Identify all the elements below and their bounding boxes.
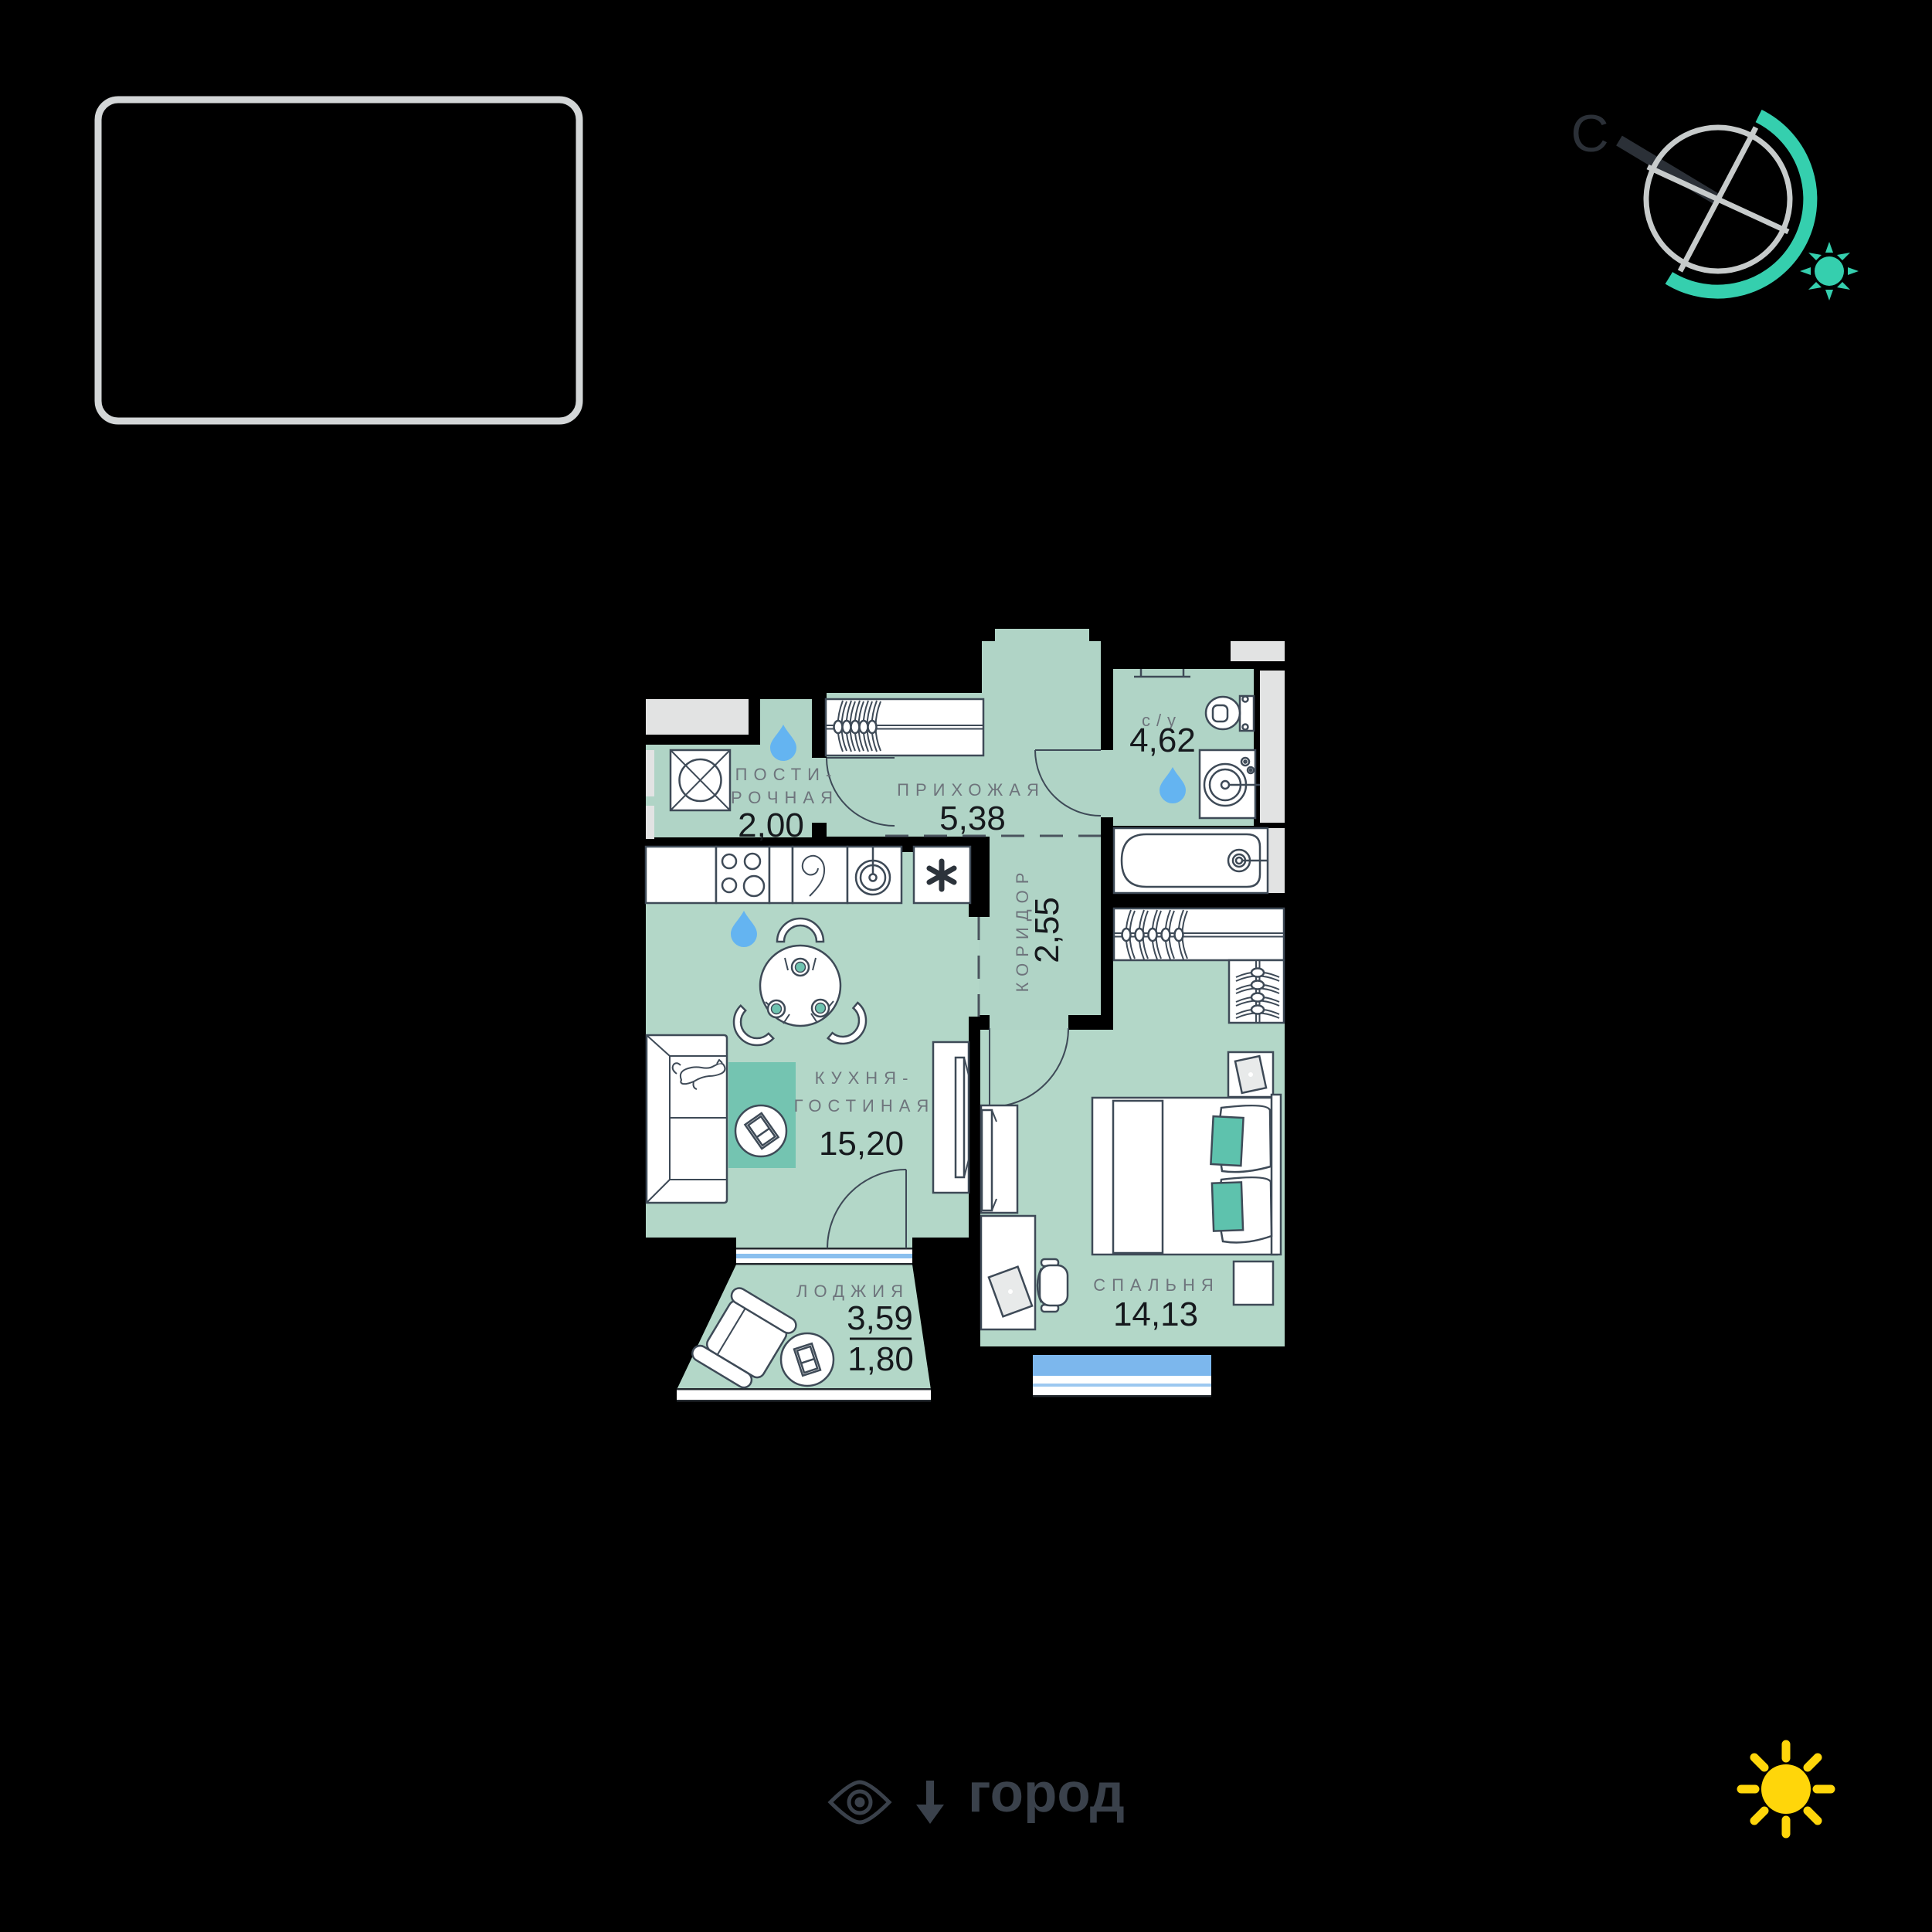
svg-text:1,80: 1,80: [847, 1340, 914, 1378]
svg-text:КУХНЯ-: КУХНЯ-: [815, 1068, 915, 1088]
svg-text:14,13: 14,13: [1113, 1295, 1198, 1333]
svg-text:ПОСТИ-: ПОСТИ-: [735, 765, 838, 784]
svg-text:ПРИХОЖАЯ: ПРИХОЖАЯ: [897, 780, 1045, 800]
svg-text:С: С: [1570, 104, 1608, 163]
svg-text:2,55: 2,55: [1028, 897, 1066, 963]
svg-text:5,38: 5,38: [939, 800, 1006, 837]
svg-text:2,00: 2,00: [738, 806, 804, 844]
svg-text:3,59: 3,59: [847, 1299, 913, 1337]
svg-text:РОЧНАЯ: РОЧНАЯ: [731, 788, 839, 807]
svg-text:ЛОДЖИЯ: ЛОДЖИЯ: [796, 1282, 909, 1301]
svg-text:город: город: [968, 1763, 1125, 1824]
svg-text:15,20: 15,20: [819, 1125, 904, 1163]
svg-text:СПАЛЬНЯ: СПАЛЬНЯ: [1093, 1275, 1220, 1295]
svg-text:4,62: 4,62: [1129, 722, 1196, 759]
svg-text:ГОСТИНАЯ: ГОСТИНАЯ: [794, 1096, 935, 1115]
